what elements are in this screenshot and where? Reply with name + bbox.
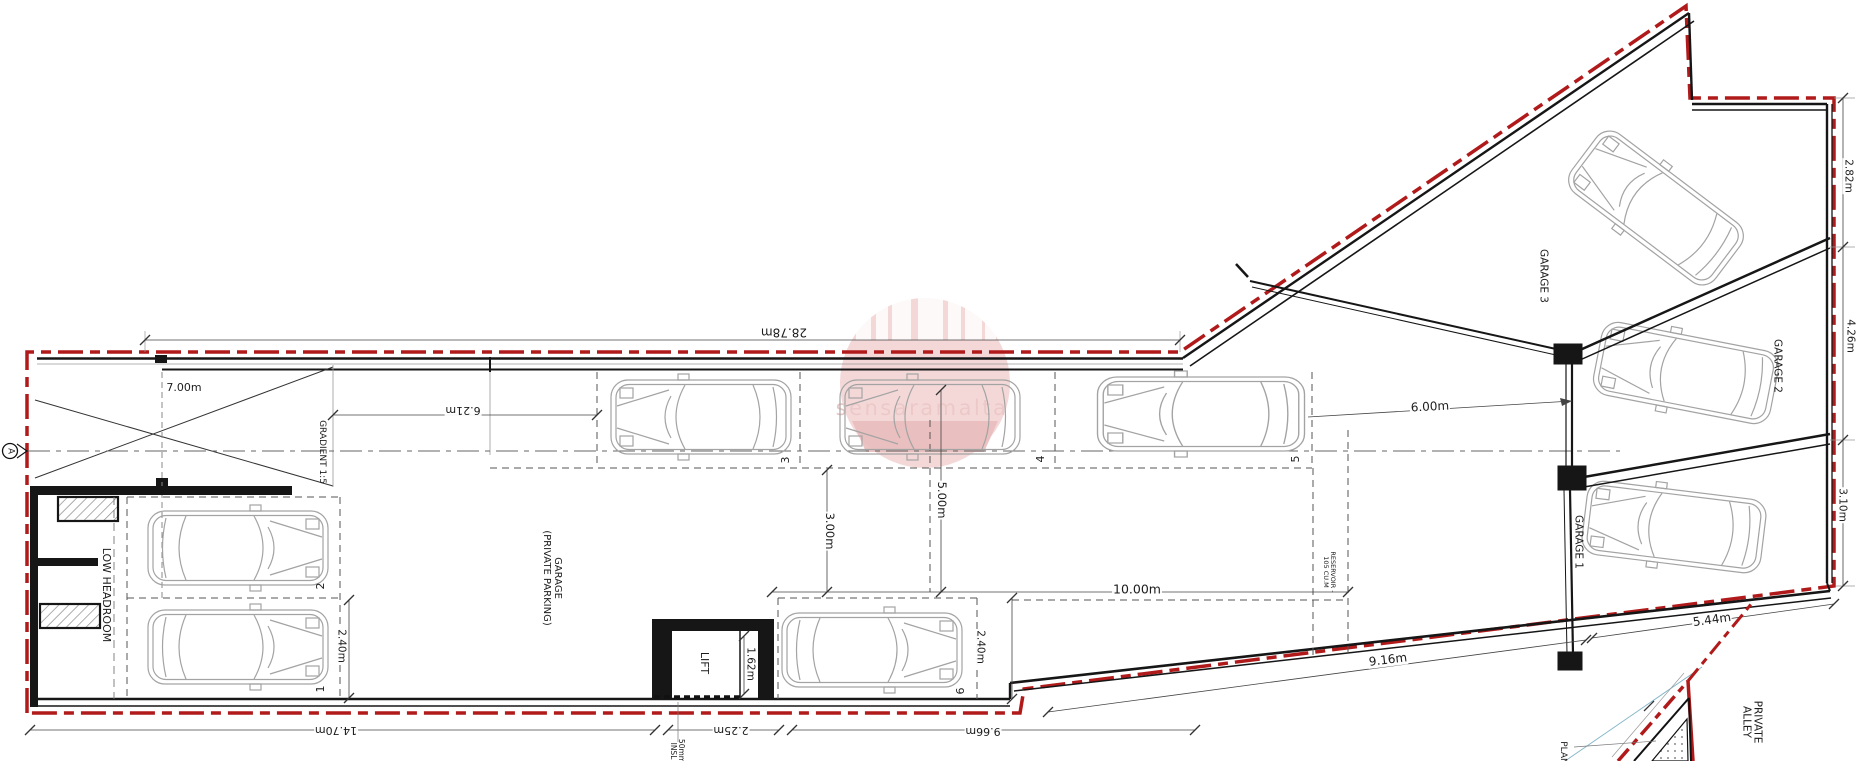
private-alley-triangle xyxy=(1568,603,1752,761)
label-low-headroom: LOW HEADROOM xyxy=(100,548,112,642)
dim-top-boundary: 28.78m xyxy=(761,326,807,339)
floor-plan-page: sensaramalta xyxy=(0,0,1860,761)
garage-walls xyxy=(1236,238,1830,670)
floor-plan-drawing xyxy=(0,0,1860,761)
label-gradient: GRADIENT 1:5 xyxy=(316,420,326,484)
dim-right-mid: 4.26m xyxy=(1844,318,1855,354)
label-garage-2: GARAGE 2 xyxy=(1771,339,1782,393)
dim-garage-front: 6.00m xyxy=(1409,399,1450,414)
space-number-5: 5 xyxy=(1290,456,1302,463)
dim-lift-shaft: 1.62m xyxy=(744,646,755,682)
car-space-6 xyxy=(782,607,962,693)
space-number-2: 2 xyxy=(315,583,327,590)
dim-right-bottom: 3.10m xyxy=(1836,487,1847,523)
car-space-5 xyxy=(1098,371,1305,457)
dim-bay-depth-3: 3.00m xyxy=(824,512,836,551)
label-garage-3: GARAGE 3 xyxy=(1537,249,1548,303)
space-number-1: 1 xyxy=(315,686,327,693)
space-number-6: 6 xyxy=(955,688,967,695)
dim-ramp-length: 6.21m xyxy=(444,404,481,416)
parking-bays xyxy=(127,372,1348,699)
section-marker-a: A xyxy=(5,448,14,454)
label-insl: 50mm INSL xyxy=(669,739,685,761)
car-space-1 xyxy=(148,604,328,690)
space-number-4: 4 xyxy=(1035,456,1047,463)
dim-bay-width-left: 2.40m xyxy=(335,628,346,664)
dim-right-top: 2.82m xyxy=(1842,158,1853,194)
label-garage-1: GARAGE 1 xyxy=(1572,515,1583,569)
label-plan: PLAN xyxy=(1557,741,1567,761)
dim-lift-outer: 2.25m xyxy=(712,724,749,736)
label-reservoir: RESERVOIR - 105 CU.M xyxy=(1322,551,1336,592)
car-space-2 xyxy=(148,505,328,591)
dim-aisle-length: 10.00m xyxy=(1112,582,1162,596)
car-space-3 xyxy=(611,374,791,460)
watermark-logo xyxy=(840,280,1010,468)
car-garage-1 xyxy=(1579,473,1768,580)
low-headroom-walls xyxy=(30,486,292,707)
car-garage-3 xyxy=(1558,119,1754,296)
dim-bottom-left: 14.70m xyxy=(314,724,358,736)
label-private-alley: PRIVATE ALLEY xyxy=(1740,701,1763,744)
space-number-3: 3 xyxy=(780,457,792,464)
dim-entrance-width: 7.00m xyxy=(165,382,202,394)
centerline xyxy=(3,444,1621,459)
dim-bay-depth-5: 5.00m xyxy=(936,481,948,520)
label-garage-private-parking: GARAGE (PRIVATE PARKING) xyxy=(540,530,562,626)
dim-bottom-mid: 9.66m xyxy=(964,725,1001,737)
label-lift: LIFT xyxy=(698,652,710,674)
dim-bay-width-right: 2.40m xyxy=(974,629,985,665)
